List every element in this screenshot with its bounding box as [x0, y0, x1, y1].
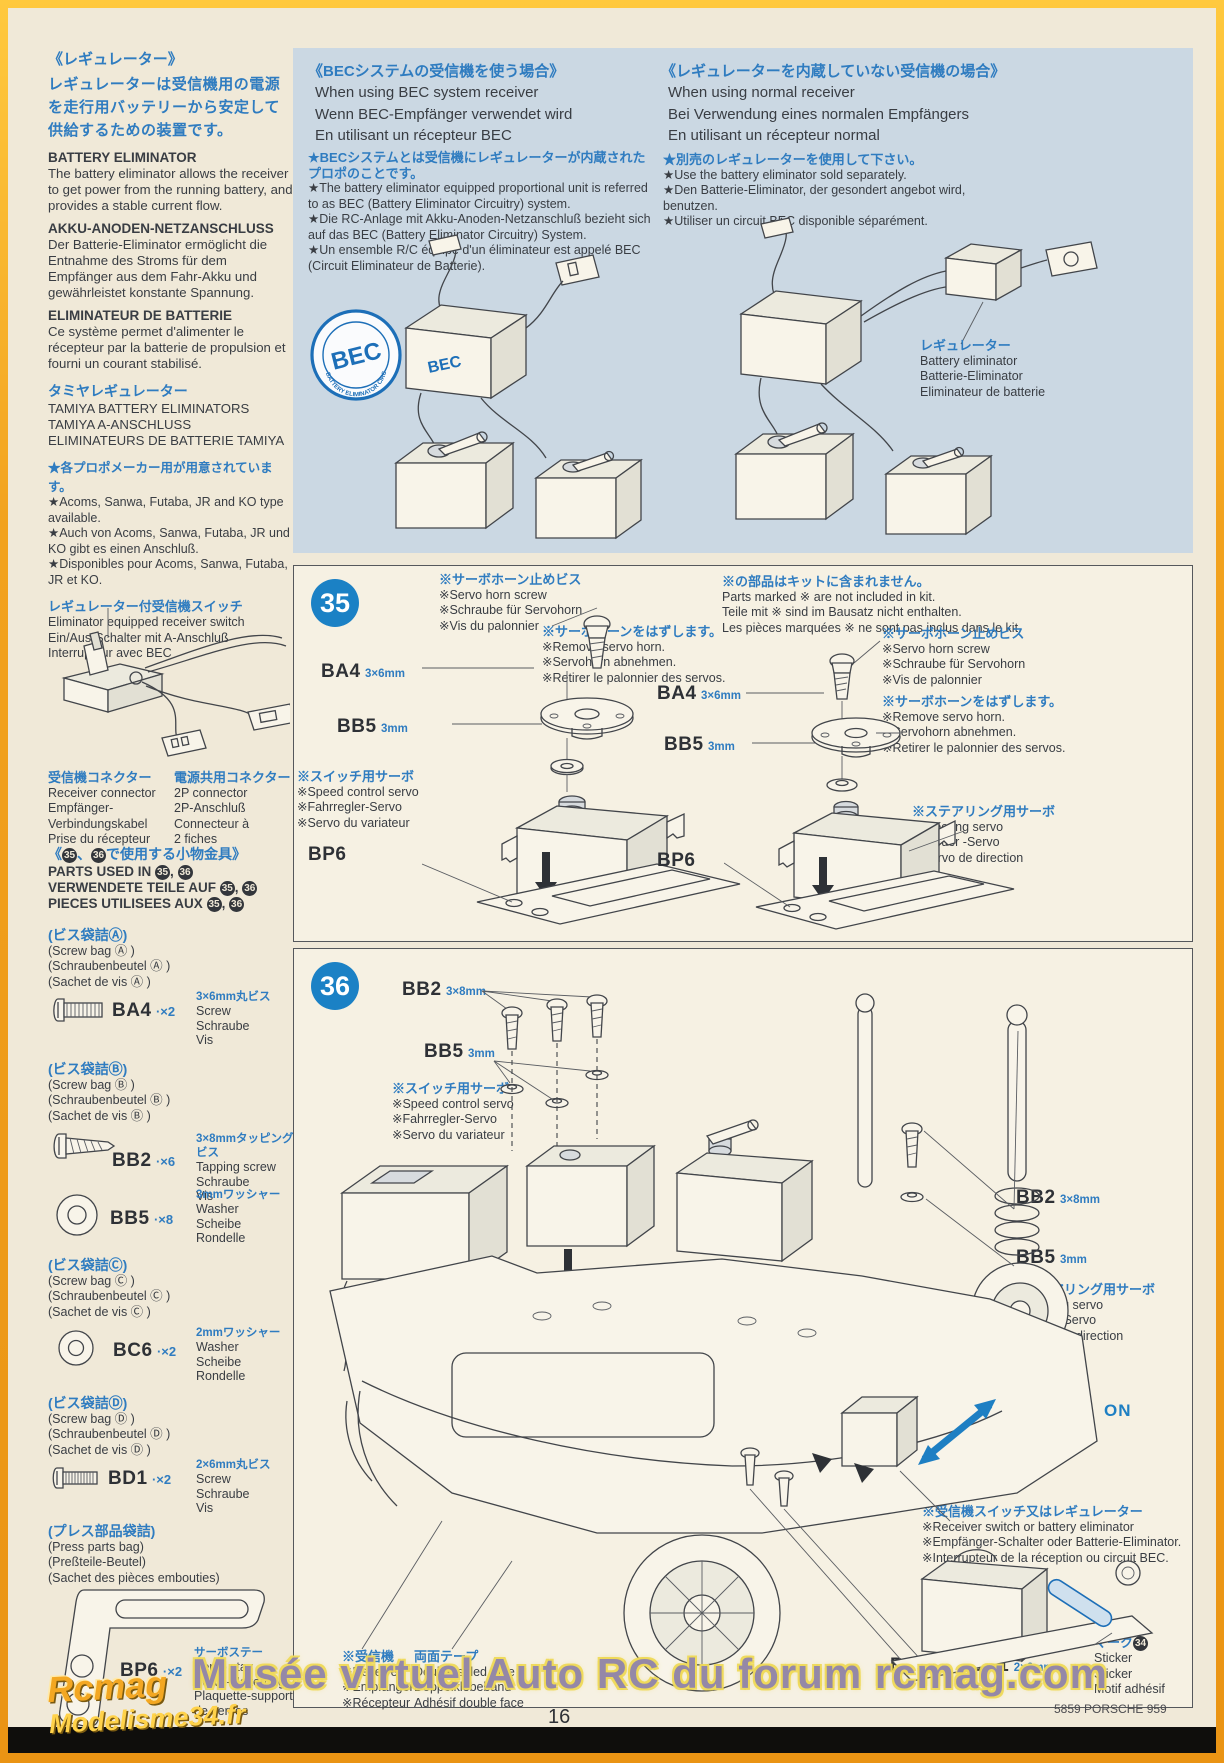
receiver-options-panel: 《BECシステムの受信機を使う場合》 When using BEC system… [293, 48, 1193, 553]
eliminator-de: Batterie-Eliminator [920, 369, 1090, 385]
bag-b-heading: (ビス袋詰Ⓑ) (Screw bag Ⓑ ) (Schraubenbeutel … [48, 1062, 170, 1124]
battery-eliminator-unit [946, 242, 1097, 300]
ba4-size: 3×6mm丸ビス [196, 990, 296, 1004]
bag-b-en: (Screw bag Ⓑ ) [48, 1078, 170, 1094]
brands-jp: ★各プロポメーカー用が用意されています。 [48, 457, 294, 495]
small-screw-icon [50, 1466, 102, 1490]
washer [551, 760, 583, 775]
kit-note-en: Parts marked ※ are not included in kit. [722, 590, 1052, 606]
bb2-size: 3×8mmタッピングビス [196, 1132, 301, 1160]
bb5-size: 3mmワッシャー [196, 1188, 296, 1202]
machine-screw-icon [50, 996, 108, 1024]
receiver-connector-de1: Empfänger- [48, 801, 170, 817]
receiver-connector-en: Receiver connector [48, 786, 170, 802]
bec-note-jp: ★BECシステムとは受信機にレギュレーターが内蔵されたプロポのことです。 [308, 150, 656, 181]
chassis-plate [330, 1256, 1097, 1533]
bb2-n2: Schraube [196, 1175, 301, 1190]
bb5-label-left: BB5 3mm [337, 716, 408, 738]
bec-receiver-diagram: BEC BEC [301, 233, 656, 548]
servo-left [396, 432, 513, 528]
bb5-n1: Washer [196, 1202, 296, 1217]
bag-a-de: (Schraubenbeutel Ⓐ ) [48, 959, 170, 975]
bag-a-item: BA4 ·×2 [112, 1000, 175, 1022]
tapping-screw-icon [50, 1130, 116, 1164]
screw [830, 654, 854, 699]
product-code: 5859 PORSCHE 959 [1054, 1702, 1167, 1716]
parts-used-de: VERWENDETE TEILE AUF 35, 36 [48, 880, 298, 896]
servo-left [736, 423, 853, 519]
normal-de-title: Bei Verwendung eines normalen Empfängers [668, 104, 969, 126]
regulator-jp-body: レギュレーターは受信機用の電源を走行用バッテリーから安定して供給するための装置で… [48, 73, 294, 142]
tamiya-de: TAMIYA A-ANSCHLUSS [48, 417, 294, 433]
bd1-n2: Schraube [196, 1487, 296, 1502]
bag-c-de: (Schraubenbeutel Ⓒ ) [48, 1289, 170, 1305]
bc6-n2: Scheibe [196, 1355, 296, 1370]
bag-b-item2-names: 3mmワッシャー Washer Scheibe Rondelle [196, 1188, 296, 1246]
bag-a-en: (Screw bag Ⓐ ) [48, 944, 170, 960]
watermark-text: Musée virtuel Auto RC du forum rcmag.com [150, 1650, 1150, 1698]
servo-right [536, 452, 641, 539]
bag-c-en: (Screw bag Ⓒ ) [48, 1274, 170, 1290]
bb2-n1: Tapping screw [196, 1160, 301, 1175]
kit-note-jp: ※の部品はキットに含まれません。 [722, 574, 1052, 590]
parts-used-fr: PIECES UTILISEES AUX 35, 36 [48, 896, 298, 912]
normal-note-de: ★Den Batterie-Eliminator, der gesondert … [663, 183, 993, 214]
normal-titles: When using normal receiver Bei Verwendun… [668, 82, 969, 147]
eliminator-fr: Eliminateur de batterie [920, 385, 1090, 401]
akku-title: AKKU-ANODEN-NETZANSCHLUSS [48, 221, 294, 237]
eliminator-en: Battery eliminator [920, 354, 1090, 370]
bag-d-item: BD1 ·×2 [108, 1468, 171, 1490]
tamiya-fr: ELIMINATEURS DE BATTERIE TAMIYA [48, 433, 294, 449]
bp6-label-right: BP6 [657, 850, 695, 872]
power-connector-fr1: Connecteur à [174, 817, 294, 833]
akku-body: Der Batterie-Eliminator ermöglicht die E… [48, 237, 294, 301]
power-connector-de: 2P-Anschluß [174, 801, 294, 817]
bb5-n3: Rondelle [196, 1231, 296, 1246]
bag-a-jp: (ビス袋詰Ⓐ) [48, 928, 170, 944]
bag-c-fr: (Sachet de vis Ⓒ ) [48, 1305, 170, 1321]
servo-horn [541, 698, 633, 739]
watermark-logo: Rcmag Modelisme34.fr [46, 1663, 246, 1741]
parts-used-en: PARTS USED IN 35, 36 [48, 864, 298, 880]
eliminateur-body: Ce système permet d'alimenter le récepte… [48, 324, 294, 372]
washer [827, 779, 857, 791]
bag-d-item-names: 2×6mm丸ビス Screw Schraube Vis [196, 1458, 296, 1516]
battery-eliminator-title: BATTERY ELIMINATOR [48, 150, 294, 166]
eliminator-switch-drawing [50, 608, 290, 766]
servo-horn [812, 718, 900, 757]
washer-2mm-icon [56, 1328, 96, 1368]
bec-jp-title: 《BECシステムの受信機を使う場合》 [308, 60, 564, 81]
bd1-n3: Vis [196, 1501, 296, 1516]
page-number: 16 [548, 1706, 570, 1729]
page-paper: 《レギュレーター》 レギュレーターは受信機用の電源を走行用バッテリーから安定して… [8, 8, 1216, 1727]
bag-b-item1: BB2 ·×6 [112, 1150, 175, 1172]
bc6-n1: Washer [196, 1340, 296, 1355]
brands-en: ★Acoms, Sanwa, Futaba, JR and KO type av… [48, 495, 294, 526]
power-connector-labels: 電源共用コネクター 2P connector 2P-Anschluß Conne… [174, 770, 294, 848]
normal-jp-title: 《レギュレーターを内蔵していない受信機の場合》 [661, 60, 1005, 81]
bag-c-item-names: 2mmワッシャー Washer Scheibe Rondelle [196, 1326, 296, 1384]
eliminateur-title: ELIMINATEUR DE BATTERIE [48, 308, 294, 324]
receiver-connector-labels: 受信機コネクター Receiver connector Empfänger- V… [48, 770, 170, 848]
bag-c-item: BC6 ·×2 [113, 1340, 176, 1362]
bag-d-heading: (ビス袋詰Ⓓ) (Screw bag Ⓓ ) (Schraubenbeutel … [48, 1396, 170, 1458]
horn-screw-en: ※Servo horn screw [439, 588, 582, 604]
bag-d-en: (Screw bag Ⓓ ) [48, 1412, 170, 1428]
ba4-n3: Vis [196, 1033, 296, 1048]
normal-note-en: ★Use the battery eliminator sold separat… [663, 168, 993, 184]
receiver-connector-de2: Verbindungskabel [48, 817, 170, 833]
horn-screw-jp: ※サーボホーン止めビス [439, 572, 582, 588]
bec-stamp: BEC BATTERY ELIMINATOR CIRCUITRY [301, 233, 400, 399]
bag-b-item2: BB5 ·×8 [110, 1208, 173, 1230]
ba4-n2: Schraube [196, 1019, 296, 1034]
step-35-panel: 35 ※サーボホーン止めビス ※Servo horn screw ※Schrau… [293, 565, 1193, 942]
servo-right [886, 448, 991, 535]
bag-c-jp: (ビス袋詰Ⓒ) [48, 1258, 170, 1274]
brands-fr: ★Disponibles pour Acoms, Sanwa, Futaba, … [48, 557, 294, 588]
bec-titles: When using BEC system receiver Wenn BEC-… [315, 82, 572, 147]
press-bag-heading: (プレス部品袋詰) (Press parts bag) (Preßteile-B… [48, 1524, 220, 1586]
normal-fr-title: En utilisant un récepteur normal [668, 125, 969, 147]
step-36-panel: 36 BB2 3×8mm BB5 3mm ※スイッチ用サーボ ※Speed co… [293, 948, 1193, 1708]
bag-d-de: (Schraubenbeutel Ⓓ ) [48, 1427, 170, 1443]
normal-note-jp: ★別売のレギュレーターを使用して下さい。 [663, 152, 993, 168]
bd1-n1: Screw [196, 1472, 296, 1487]
bag-d-jp: (ビス袋詰Ⓓ) [48, 1396, 170, 1412]
screw [584, 616, 610, 668]
servo-assembly-left [422, 606, 742, 936]
kit-note-de: Teile mit ※ sind im Bausatz nicht enthal… [722, 605, 1052, 621]
bag-b-fr: (Sachet de vis Ⓑ ) [48, 1109, 170, 1125]
press-bag-fr: (Sachet des pièces embouties) [48, 1571, 220, 1587]
bag-b-de: (Schraubenbeutel Ⓑ ) [48, 1093, 170, 1109]
bag-a-fr: (Sachet de vis Ⓐ ) [48, 975, 170, 991]
power-connector-en: 2P connector [174, 786, 294, 802]
bc6-size: 2mmワッシャー [196, 1326, 296, 1340]
right-screw-washer [901, 1031, 1018, 1266]
parts-used-jp: 《35、36で使用する小物金具》 [48, 844, 298, 864]
tamiya-en: TAMIYA BATTERY ELIMINATORS [48, 401, 294, 417]
bec-de-title: Wenn BEC-Empfänger verwendet wird [315, 104, 572, 126]
battery-eliminator-body: The battery eliminator allows the receiv… [48, 166, 294, 214]
eliminator-jp: レギュレーター [920, 338, 1090, 354]
bag-b-jp: (ビス袋詰Ⓑ) [48, 1062, 170, 1078]
washer-3mm-icon [54, 1192, 100, 1238]
chassis-diagram [302, 961, 1186, 1705]
screws-top [502, 995, 607, 1049]
regulator-jp-title: 《レギュレーター》 [48, 48, 294, 69]
press-bag-de: (Preßteile-Beutel) [48, 1555, 220, 1571]
parts-used-heading: 《35、36で使用する小物金具》 PARTS USED IN 35, 36 VE… [48, 844, 298, 912]
receiver-connector-jp: 受信機コネクター [48, 770, 170, 786]
scanned-manual-page: { "colors":{"accent_blue":"#2f7cc0","pan… [0, 0, 1224, 1763]
bec-note-en: ★The battery eliminator equipped proport… [308, 181, 656, 212]
press-bag-en: (Press parts bag) [48, 1540, 220, 1556]
ba4-label-left: BA4 3×6mm [321, 661, 405, 683]
tamiya-jp-title: タミヤレギュレーター [48, 381, 294, 401]
ba4-n1: Screw [196, 1004, 296, 1019]
bag-c-heading: (ビス袋詰Ⓒ) (Screw bag Ⓒ ) (Schraubenbeutel … [48, 1258, 170, 1320]
bd1-size: 2×6mm丸ビス [196, 1458, 296, 1472]
press-bag-jp: (プレス部品袋詰) [48, 1524, 220, 1540]
bag-d-fr: (Sachet de vis Ⓓ ) [48, 1443, 170, 1459]
bc6-n3: Rondelle [196, 1369, 296, 1384]
step-35-number: 35 [311, 579, 359, 627]
servo-assembly-right [724, 621, 1034, 936]
bec-en-title: When using BEC system receiver [315, 82, 572, 104]
bec-fr-title: En utilisant un récepteur BEC [315, 125, 572, 147]
bag-a-item-names: 3×6mm丸ビス Screw Schraube Vis [196, 990, 296, 1048]
eliminator-labels: レギュレーター Battery eliminator Batterie-Elim… [920, 338, 1090, 400]
left-column: 《レギュレーター》 レギュレーターは受信機用の電源を走行用バッテリーから安定して… [48, 48, 294, 662]
bag-a-heading: (ビス袋詰Ⓐ) (Screw bag Ⓐ ) (Schraubenbeutel … [48, 928, 170, 990]
bp6-label-left: BP6 [308, 844, 346, 866]
bb5-n2: Scheibe [196, 1217, 296, 1232]
normal-en-title: When using normal receiver [668, 82, 969, 104]
brands-de: ★Auch von Acoms, Sanwa, Futaba, JR und K… [48, 526, 294, 557]
power-connector-jp: 電源共用コネクター [174, 770, 294, 786]
